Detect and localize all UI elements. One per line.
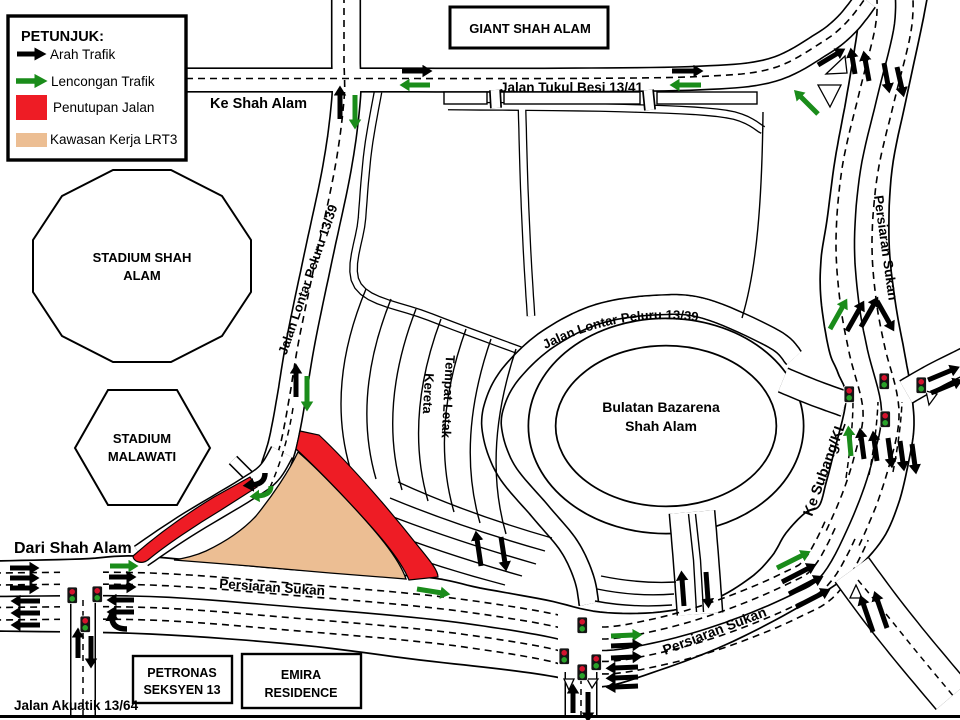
svg-text:Ke Shah Alam: Ke Shah Alam [210,96,307,112]
svg-text:Dari Shah Alam: Dari Shah Alam [14,540,132,557]
svg-text:Arah Trafik: Arah Trafik [50,47,116,62]
svg-text:SEKSYEN 13: SEKSYEN 13 [143,683,220,697]
svg-text:STADIUM SHAH: STADIUM SHAH [93,250,192,265]
svg-text:MALAWATI: MALAWATI [108,449,176,464]
svg-text:Jalan Tukul Besi 13/41: Jalan Tukul Besi 13/41 [500,80,644,95]
svg-text:ALAM: ALAM [123,268,161,283]
svg-text:STADIUM: STADIUM [113,431,171,446]
svg-text:RESIDENCE: RESIDENCE [265,686,338,700]
svg-text:Jalan Akuatik 13/64: Jalan Akuatik 13/64 [14,698,139,713]
svg-text:EMIRA: EMIRA [281,668,321,682]
svg-text:Penutupan Jalan: Penutupan Jalan [53,100,154,115]
svg-text:PETUNJUK:: PETUNJUK: [21,29,104,45]
svg-text:Bulatan Bazarena: Bulatan Bazarena [602,399,720,415]
svg-text:Kawasan Kerja LRT3: Kawasan Kerja LRT3 [50,132,177,147]
svg-text:Kereta: Kereta [420,373,437,415]
svg-text:GIANT SHAH ALAM: GIANT SHAH ALAM [469,21,591,36]
svg-text:PETRONAS: PETRONAS [147,666,216,680]
svg-text:Lencongan Trafik: Lencongan Trafik [51,74,155,89]
svg-text:Shah Alam: Shah Alam [625,418,697,434]
